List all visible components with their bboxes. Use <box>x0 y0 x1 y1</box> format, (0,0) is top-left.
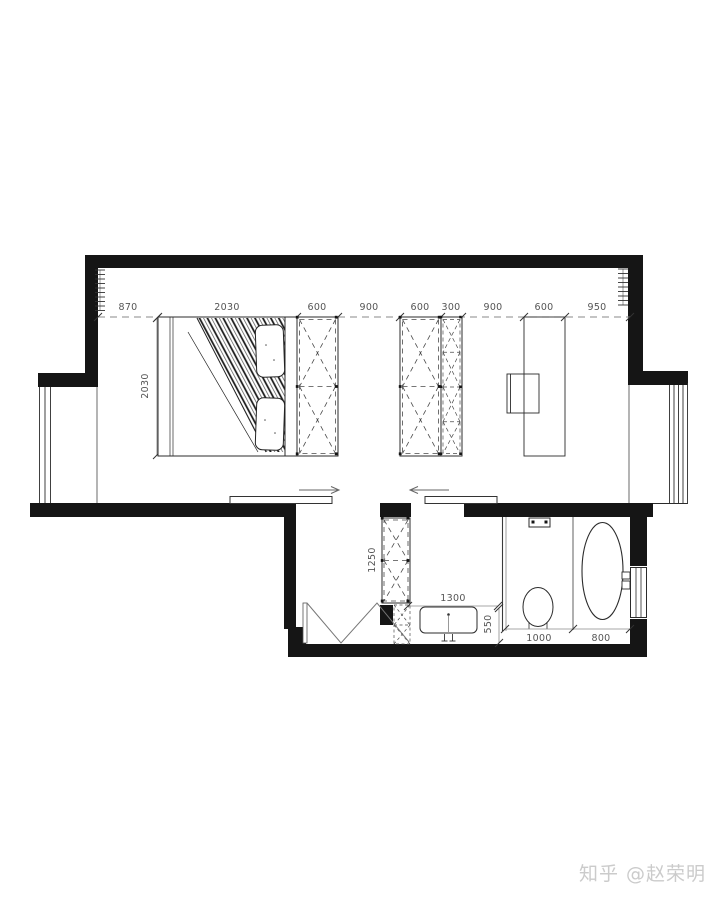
pillow-bottom <box>255 398 285 451</box>
wall-top <box>85 255 643 268</box>
dim-label-600a: 600 <box>307 302 326 313</box>
wall-bottom <box>288 644 647 657</box>
wall-bathroom-right-upper <box>630 517 647 567</box>
dim-label-1250: 1250 <box>367 547 378 572</box>
floor-plan-page: 870 2030 600 900 600 300 900 600 950 203… <box>0 0 720 900</box>
wall-left-step <box>38 373 98 387</box>
hall-cabinet: 1250 <box>367 517 410 603</box>
sliding-door-right <box>410 487 497 504</box>
dim-label-900b: 900 <box>483 302 502 313</box>
dim-label-600c: 600 <box>534 302 553 313</box>
faucet-icon <box>447 613 450 616</box>
wall-bathroom-top <box>464 503 653 517</box>
bed <box>158 317 297 456</box>
wardrobe-a <box>296 316 338 456</box>
floor-plan-drawing: 870 2030 600 900 600 300 900 600 950 203… <box>0 0 720 900</box>
dim-label-1300: 1300 <box>440 593 465 604</box>
wall-middle-stub <box>380 503 411 517</box>
dimension-bathroom: 1000 800 <box>501 625 634 644</box>
bathroom-window <box>630 566 647 619</box>
toilet <box>523 518 553 629</box>
bay-window-right <box>629 383 688 504</box>
wall-right-step <box>628 371 688 385</box>
wall-left-upper <box>85 255 98 373</box>
dim-label-950: 950 <box>587 302 606 313</box>
dim-label-2030: 2030 <box>214 302 239 313</box>
bay-window-left <box>40 387 98 503</box>
vanity-sink <box>420 607 477 641</box>
wall-right-upper <box>628 255 643 371</box>
water-valves-icon <box>442 634 456 641</box>
duct-shaft <box>394 605 410 644</box>
narrow-cabinet <box>440 316 462 456</box>
wall-entry-left <box>284 503 296 629</box>
pillow-top <box>255 325 285 378</box>
wall-bedroom-bottom-left <box>30 503 296 517</box>
sliding-door-left <box>230 487 339 504</box>
chair <box>507 374 539 413</box>
bathtub <box>582 523 630 620</box>
bath-mixer-icon <box>622 572 630 589</box>
folding-door <box>303 603 409 643</box>
dim-label-800: 800 <box>591 633 610 644</box>
dim-label-550: 550 <box>483 614 494 633</box>
dim-label-600b: 600 <box>410 302 429 313</box>
desk <box>524 317 565 456</box>
dim-label-300: 300 <box>441 302 460 313</box>
dim-label-900a: 900 <box>359 302 378 313</box>
dim-label-870: 870 <box>118 302 137 313</box>
dim-label-1000: 1000 <box>526 633 551 644</box>
dim-label-bed-2030: 2030 <box>140 373 151 398</box>
wardrobe-b <box>399 316 441 456</box>
radiator-icon-right <box>618 269 628 305</box>
watermark: 知乎 @赵荣明 <box>579 859 706 886</box>
